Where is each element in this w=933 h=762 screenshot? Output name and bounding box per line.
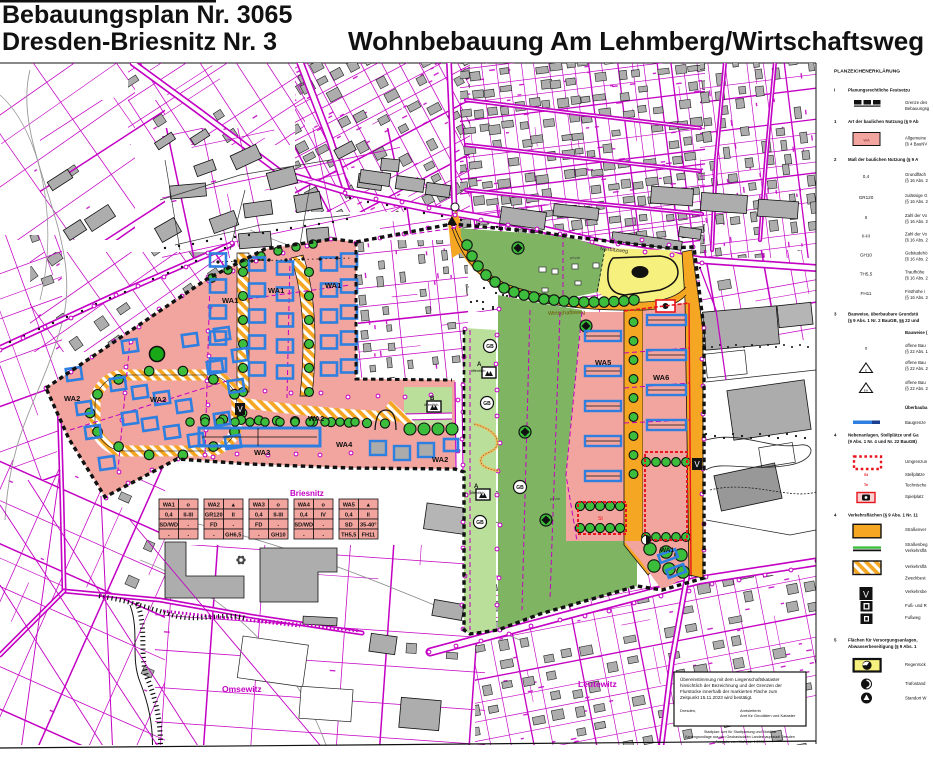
svg-text:WA: WA [863, 138, 870, 143]
svg-text:WA1: WA1 [163, 502, 175, 508]
svg-text:(§ 22 Abs. 2: (§ 22 Abs. 2 [905, 386, 929, 391]
svg-text:II-III: II-III [183, 512, 193, 518]
svg-text:GB: GB [476, 520, 484, 526]
svg-text:Straßenbeg: Straßenbeg [905, 542, 928, 547]
svg-text:WA1: WA1 [325, 281, 341, 290]
svg-text:FH11: FH11 [362, 532, 375, 538]
svg-text:GH10: GH10 [860, 253, 872, 258]
svg-text:Abwasserbeseitigung (§ 9 Abs.: Abwasserbeseitigung (§ 9 Abs. 1 [848, 644, 917, 649]
svg-text:0,4: 0,4 [165, 512, 174, 518]
svg-text:WA1: WA1 [660, 547, 674, 554]
svg-text:Zweckbest: Zweckbest [905, 576, 926, 581]
svg-text:Zahl der Vo: Zahl der Vo [905, 213, 928, 218]
svg-text:TH5,5: TH5,5 [860, 272, 873, 277]
svg-text:0,4: 0,4 [863, 174, 870, 179]
svg-text:Dresden,: Dresden, [680, 708, 696, 713]
svg-text:Umgrenzun: Umgrenzun [905, 459, 928, 464]
svg-text:WA5: WA5 [595, 358, 611, 367]
svg-text:Leutewitz: Leutewitz [578, 679, 617, 689]
svg-text:WA4: WA4 [298, 502, 311, 508]
svg-text:Wohnbebauung Am Lehmberg/Wirts: Wohnbebauung Am Lehmberg/Wirtschaftsweg [348, 26, 924, 56]
svg-text:WA1: WA1 [222, 296, 238, 305]
svg-text:GB: GB [483, 401, 491, 407]
svg-text:Amt für Geodäten und Kataster: Amt für Geodäten und Kataster [740, 713, 796, 718]
svg-text:-: - [303, 532, 305, 538]
svg-text:A: A [477, 362, 482, 368]
svg-text:Straßenver: Straßenver [905, 527, 927, 532]
svg-text:-: - [322, 532, 324, 538]
svg-text:Verkehrsbe: Verkehrsbe [905, 589, 927, 594]
svg-text:Maß der baulichen Nutzung (§ 9: Maß der baulichen Nutzung (§ 9 A [848, 157, 919, 162]
svg-text:o: o [865, 346, 868, 351]
svg-text:o: o [187, 502, 191, 508]
svg-text:Bebauungsg: Bebauungsg [905, 106, 930, 111]
svg-text:II-III: II-III [862, 234, 870, 239]
svg-text:öffentlich: öffentlich [470, 491, 484, 495]
svg-text:hinsichtlich der Bezeichnung u: hinsichtlich der Bezeichnung und der Gre… [680, 683, 782, 688]
svg-text:A: A [474, 484, 479, 490]
svg-text:Fußweg: Fußweg [905, 615, 921, 620]
svg-text:II-III: II-III [273, 512, 283, 518]
svg-text:(9 Abs. 1 Nr. 4 und Nr. 22 Bau: (9 Abs. 1 Nr. 4 und Nr. 22 BauGB) [848, 439, 917, 444]
svg-text:WA2: WA2 [208, 502, 220, 508]
svg-text:Allgemeine: Allgemeine [905, 136, 927, 141]
svg-text:-: - [258, 532, 260, 538]
svg-text:(§ 16 Abs. 2: (§ 16 Abs. 2 [905, 178, 929, 183]
svg-text:Zahl der Vo: Zahl der Vo [905, 232, 928, 237]
svg-text:Grenze des: Grenze des [905, 100, 927, 105]
svg-text:(§ 16 Abs. 2: (§ 16 Abs. 2 [905, 295, 929, 300]
svg-text:Bauweise, überbaubare Grundstü: Bauweise, überbaubare Grundstü [848, 312, 919, 317]
svg-text:o: o [322, 502, 326, 508]
svg-text:Verkehrsflä: Verkehrsflä [905, 548, 927, 553]
svg-text:(§ 9 Abs. 1 Nr. 2 BauGB, §§ 22: (§ 9 Abs. 1 Nr. 2 BauGB, §§ 22 und [848, 318, 920, 323]
svg-text:St: St [864, 472, 869, 477]
svg-text:Art der baulichen Nutzung (§ 9: Art der baulichen Nutzung (§ 9 Ab [848, 119, 919, 124]
svg-text:Übereinstimmung mit dem Liegen: Übereinstimmung mit dem Liegenschaftskat… [680, 676, 780, 682]
svg-text:GB: GB [516, 485, 524, 491]
svg-text:Briesnitz: Briesnitz [290, 489, 324, 498]
svg-text:Firsthöhe i: Firsthöhe i [905, 289, 925, 294]
svg-text:Te: Te [864, 482, 869, 487]
svg-text:-: - [232, 522, 234, 528]
svg-text:0,4: 0,4 [255, 512, 264, 518]
svg-text:GH6,5: GH6,5 [225, 532, 241, 538]
svg-text:WA3: WA3 [254, 448, 270, 457]
svg-text:-: - [213, 532, 215, 538]
svg-text:(§ 16 Abs. 2: (§ 16 Abs. 2 [905, 257, 929, 262]
svg-text:WA6: WA6 [653, 373, 669, 382]
svg-text:▲: ▲ [365, 502, 371, 508]
svg-text:-: - [187, 522, 189, 528]
svg-text:Omsewitz: Omsewitz [222, 684, 262, 694]
svg-text:FD: FD [255, 522, 262, 528]
svg-text:▲: ▲ [230, 502, 236, 508]
svg-text:V: V [863, 590, 869, 600]
svg-text:FD: FD [210, 522, 217, 528]
svg-text:öffentlich: öffentlich [424, 403, 438, 407]
svg-text:Gebäudehö: Gebäudehö [905, 251, 928, 256]
svg-text:WA1: WA1 [268, 286, 284, 295]
svg-text:Kartengrundlage aus den Geobas: Kartengrundlage aus den Geobasisdaten La… [685, 735, 795, 739]
svg-text:WA2: WA2 [64, 394, 80, 403]
svg-text:I: I [834, 88, 835, 93]
svg-text:-: - [187, 532, 189, 538]
svg-text:EH: EH [864, 389, 868, 393]
svg-text:Stellplätze: Stellplätze [905, 472, 925, 477]
svg-text:-: - [277, 522, 279, 528]
svg-text:II: II [865, 215, 868, 220]
svg-text:Flurstücke innerhalb der marki: Flurstücke innerhalb der markierten Fläc… [680, 689, 777, 694]
svg-text:SD/WD: SD/WD [294, 522, 313, 528]
svg-text:Regenrück: Regenrück [905, 662, 927, 667]
svg-text:Nebenanlagen, Stellplätze und: Nebenanlagen, Stellplätze und Ga [848, 433, 919, 438]
svg-text:Standort W: Standort W [905, 696, 927, 701]
svg-text:zulässige G: zulässige G [905, 193, 928, 198]
svg-text:offene Bau: offene Bau [905, 380, 926, 385]
svg-text:(§ 16 Abs. 2: (§ 16 Abs. 2 [905, 219, 929, 224]
svg-text:Überbauba: Überbauba [905, 405, 928, 410]
svg-text:offene Bau: offene Bau [905, 360, 926, 365]
svg-text:Spielplatz: Spielplatz [905, 494, 924, 499]
svg-text:Bebauungsplan Nr. 3065: Bebauungsplan Nr. 3065 [2, 1, 292, 29]
svg-text:II: II [367, 512, 371, 518]
svg-text:WA5: WA5 [343, 502, 355, 508]
svg-text:(§ 16 Abs. 2: (§ 16 Abs. 2 [905, 276, 929, 281]
svg-text:0,4: 0,4 [345, 512, 354, 518]
svg-text:(§ 22 Abs. 1: (§ 22 Abs. 1 [905, 349, 929, 354]
svg-text:WA2: WA2 [432, 455, 448, 464]
svg-text:Dresden-Briesnitz Nr. 3: Dresden-Briesnitz Nr. 3 [2, 28, 277, 56]
svg-text:-: - [168, 532, 170, 538]
svg-text:B: B [430, 396, 435, 402]
svg-text:II: II [232, 512, 236, 518]
svg-text:35-40°: 35-40° [360, 522, 377, 528]
svg-text:(§ 4 BauNV: (§ 4 BauNV [905, 142, 927, 147]
svg-text:Fuß- und R: Fuß- und R [905, 603, 927, 608]
svg-text:öffentlich: öffentlich [471, 369, 485, 373]
svg-text:WA3: WA3 [253, 502, 265, 508]
svg-text:Flächen für Versorgungsanlagen: Flächen für Versorgungsanlagen, [848, 638, 918, 643]
svg-text:0,4: 0,4 [300, 512, 309, 518]
svg-text:St: St [598, 516, 603, 522]
svg-text:WA4: WA4 [336, 440, 353, 449]
svg-text:Zeitpunkt 15.11.2023 wird be: Zeitpunkt 15.11.2023 wird bestätigt. [680, 695, 752, 700]
svg-text:privat: privat [550, 496, 561, 501]
svg-text:Baugrenze: Baugrenze [905, 420, 926, 425]
svg-text:IV: IV [321, 512, 327, 518]
svg-text:V: V [237, 405, 243, 414]
svg-text:o: o [277, 502, 281, 508]
svg-text:Grundfläch: Grundfläch [905, 172, 927, 177]
svg-text:WA2: WA2 [308, 414, 324, 423]
svg-text:Verkehrsflä: Verkehrsflä [905, 564, 927, 569]
svg-text:Traufhöhe: Traufhöhe [905, 270, 925, 275]
svg-text:Technische: Technische [905, 483, 927, 488]
svg-text:E: E [865, 369, 867, 373]
svg-text:Verkehrsflächen (§ 9 Abs. 1 Nr: Verkehrsflächen (§ 9 Abs. 1 Nr. 11 [848, 512, 918, 517]
svg-text:V: V [694, 460, 700, 469]
svg-text:GB: GB [486, 344, 494, 350]
svg-text:SD/WD: SD/WD [159, 522, 178, 528]
svg-text:offene Bau: offene Bau [905, 343, 926, 348]
svg-text:Trafostand: Trafostand [905, 681, 926, 686]
svg-text:(§ 16 Abs. 2: (§ 16 Abs. 2 [905, 199, 929, 204]
svg-text:Planungsrechtliche Festsetzu: Planungsrechtliche Festsetzu [848, 88, 910, 93]
svg-text:Bauweise (: Bauweise ( [905, 330, 928, 335]
svg-text:SD: SD [345, 522, 353, 528]
svg-text:Stadtplan: Amt für Stadtplanu: Stadtplan: Amt für Stadtplanung und Mobi… [704, 730, 776, 734]
svg-text:PLANZEICHENERKLÄRUNG: PLANZEICHENERKLÄRUNG [834, 68, 900, 75]
svg-text:-: - [322, 522, 324, 528]
svg-text:(§ 22 Abs. 2: (§ 22 Abs. 2 [905, 366, 929, 371]
svg-text:GH10: GH10 [271, 532, 286, 538]
svg-text:TH5,5: TH5,5 [341, 532, 356, 538]
svg-text:WA2: WA2 [150, 395, 166, 404]
svg-text:(§ 16 Abs. 2: (§ 16 Abs. 2 [905, 238, 929, 243]
svg-text:FH11: FH11 [861, 291, 872, 296]
svg-text:GR120: GR120 [205, 512, 223, 518]
svg-text:GR120: GR120 [859, 195, 874, 200]
svg-text:privat: privat [570, 255, 581, 260]
